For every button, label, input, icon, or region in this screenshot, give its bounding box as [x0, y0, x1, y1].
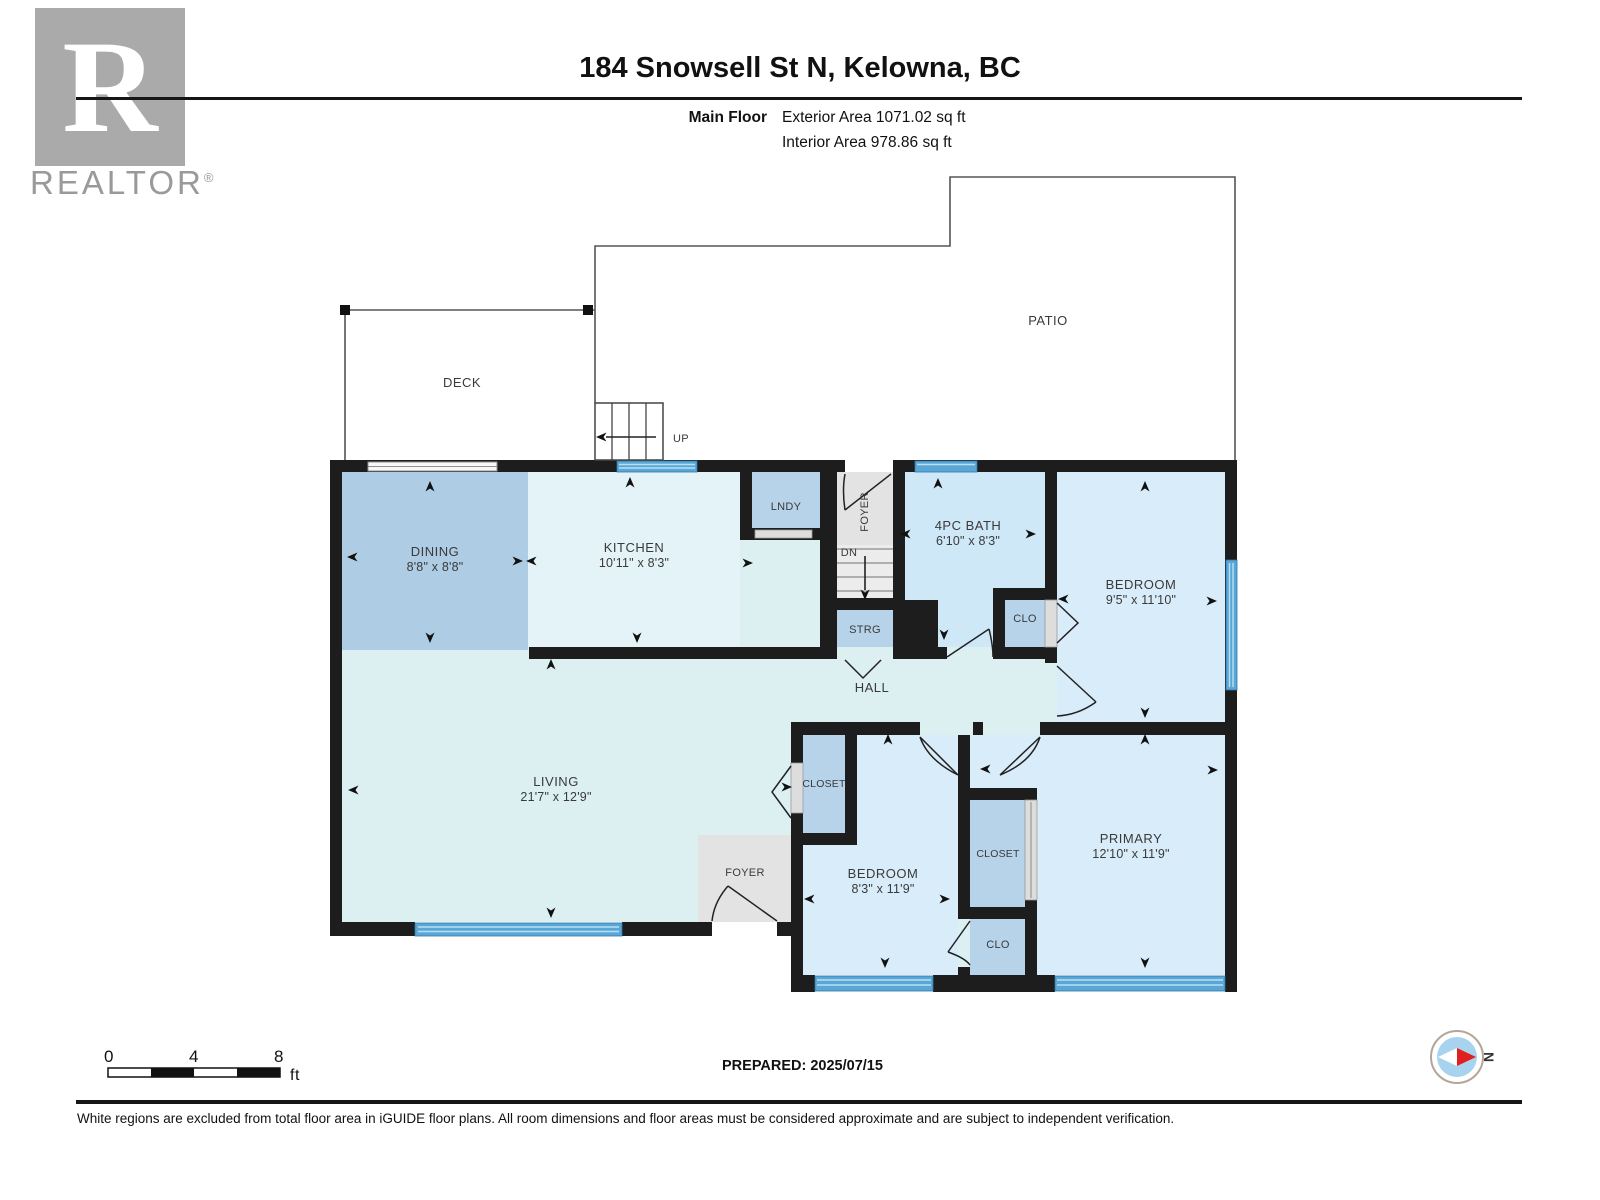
dims-kitchen: 10'11" x 8'3"	[599, 556, 669, 570]
label-kitchen: KITCHEN	[604, 540, 665, 555]
dims-primary: 12'10" x 11'9"	[1092, 847, 1169, 861]
sill-clo-top	[1045, 600, 1057, 647]
patio-outline	[595, 177, 1235, 461]
dims-bedroom-bottom: 8'3" x 11'9"	[851, 882, 914, 896]
label-lndy: LNDY	[771, 501, 802, 513]
label-bedroom-bottom: BEDROOM	[848, 866, 919, 881]
label-living: LIVING	[533, 774, 579, 789]
label-hall: HALL	[855, 680, 890, 695]
label-foyer-bottom: FOYER	[725, 867, 764, 879]
scale-tick-8: 8	[274, 1047, 284, 1066]
label-dn: DN	[841, 547, 858, 559]
label-deck: DECK	[443, 375, 481, 390]
compass-north-label: N	[1481, 1052, 1497, 1062]
label-closet-mid: CLOSET	[976, 848, 1020, 860]
label-foyer-top: FOYER	[859, 492, 871, 531]
label-dining: DINING	[411, 544, 460, 559]
label-clo-top: CLO	[1013, 613, 1037, 625]
compass-icon: N	[1431, 1031, 1497, 1083]
dims-living: 21'7" x 12'9"	[520, 790, 591, 804]
scale-tick-4: 4	[189, 1047, 199, 1066]
label-strg: STRG	[849, 624, 881, 636]
scale-bar: 0 4 8 ft	[104, 1047, 300, 1084]
window-living	[415, 923, 622, 936]
disclaimer-text: White regions are excluded from total fl…	[77, 1111, 1174, 1126]
sill-closet-left	[791, 763, 803, 813]
scale-tick-0: 0	[104, 1047, 114, 1066]
label-up: UP	[673, 433, 689, 445]
floor-lndy	[752, 472, 820, 528]
label-closet-left: CLOSET	[802, 778, 846, 790]
prepared-date: PREPARED: 2025/07/15	[722, 1058, 883, 1074]
label-bedroom-top: BEDROOM	[1106, 577, 1177, 592]
label-clo-bottom: CLO	[986, 939, 1010, 951]
scale-unit: ft	[290, 1067, 300, 1084]
dims-bath: 6'10" x 8'3"	[936, 534, 1000, 548]
window-bedroom-bottom	[815, 976, 933, 991]
footer-divider	[76, 1100, 1522, 1104]
label-patio: PATIO	[1028, 313, 1068, 328]
window-bath	[915, 461, 977, 472]
dims-dining: 8'8" x 8'8"	[407, 560, 464, 574]
window-kitchen	[617, 461, 697, 472]
floorplan-drawing: DECK PATIO UP DN DINING 8'8" x 8'8" KITC…	[0, 0, 1600, 1200]
sill-lndy	[755, 530, 812, 538]
dims-bedroom-top: 9'5" x 11'10"	[1106, 593, 1176, 607]
window-primary	[1055, 976, 1225, 991]
window-bedroom-right	[1226, 560, 1237, 690]
floorplan-page: R REALTOR® 184 Snowsell St N, Kelowna, B…	[0, 0, 1600, 1200]
stairs-up	[595, 403, 663, 460]
label-primary: PRIMARY	[1100, 831, 1163, 846]
chimney-block	[895, 600, 938, 652]
label-bath: 4PC BATH	[935, 518, 1002, 533]
